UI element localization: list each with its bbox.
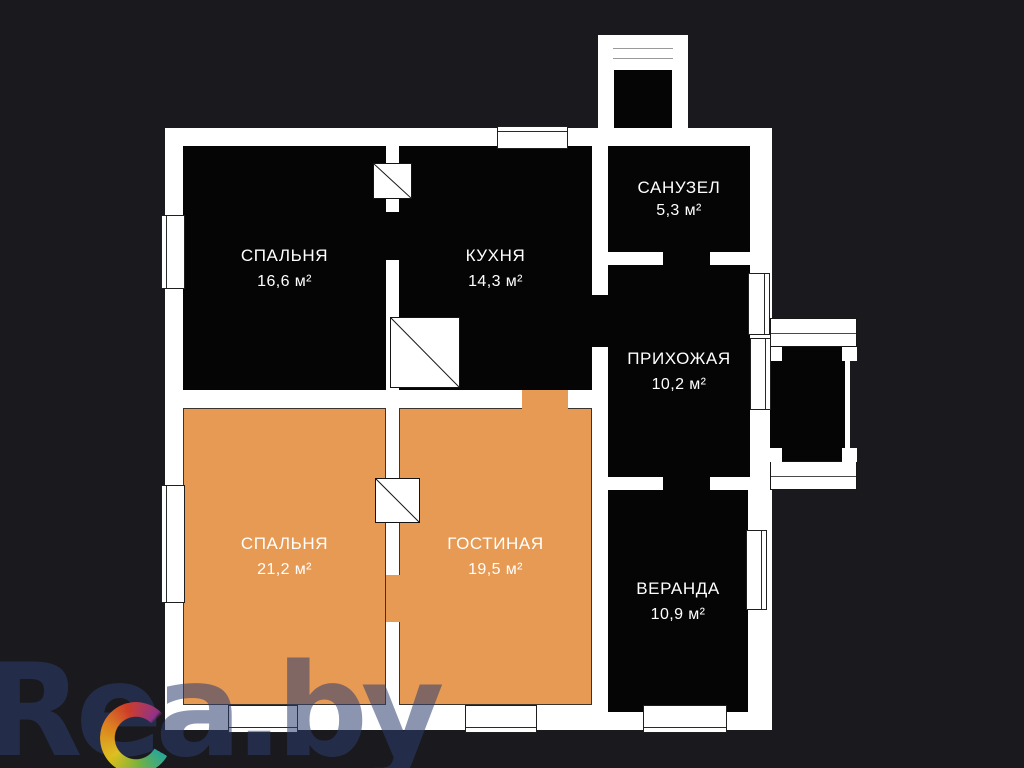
door-kitchen-hallway <box>592 295 608 347</box>
entry-door-right-porch <box>750 338 771 410</box>
room-area: 19,5 м² <box>468 561 523 579</box>
door-kitchen-living <box>522 390 568 409</box>
room-area: 21,2 м² <box>257 561 312 579</box>
room-bathroom: САНУЗЕЛ 5,3 м² <box>608 146 750 252</box>
room-name: САНУЗЕЛ <box>638 178 721 198</box>
window-bottom-veranda <box>643 705 727 733</box>
watermark-color-ring-icon <box>100 702 172 768</box>
door-bedroom-living <box>386 575 400 622</box>
room-name: КУХНЯ <box>466 246 526 266</box>
top-porch-step-line <box>613 48 673 49</box>
porch-post <box>767 448 782 462</box>
right-porch-floor <box>770 345 850 464</box>
chimney-icon <box>390 317 460 388</box>
window-bottom-living <box>465 705 537 733</box>
top-porch-step-line <box>613 58 673 59</box>
room-name: ГОСТИНАЯ <box>447 534 543 554</box>
room-area: 10,2 м² <box>652 376 707 394</box>
watermark-logo: Rea.by <box>0 648 437 768</box>
room-name: ВЕРАНДА <box>636 579 720 599</box>
room-label: СПАЛЬНЯ 21,2 м² <box>241 534 328 579</box>
window-left-bedroom-top <box>161 215 185 289</box>
room-label: ПРИХОЖАЯ 10,2 м² <box>627 349 731 394</box>
room-bedroom-top: СПАЛЬНЯ 16,6 м² <box>183 146 386 390</box>
right-porch-bottom-steps <box>770 461 857 490</box>
top-porch-vestibule <box>614 70 672 128</box>
room-label: ГОСТИНАЯ 19,5 м² <box>447 534 543 579</box>
room-hallway: ПРИХОЖАЯ 10,2 м² <box>608 265 750 477</box>
window-right-hallway <box>748 273 770 335</box>
window-right-veranda <box>746 530 767 610</box>
room-label: КУХНЯ 14,3 м² <box>466 246 526 291</box>
room-area: 16,6 м² <box>257 273 312 291</box>
room-area: 14,3 м² <box>468 273 523 291</box>
room-area: 10,9 м² <box>651 606 706 624</box>
door-hallway-veranda <box>663 477 710 490</box>
room-label: САНУЗЕЛ 5,3 м² <box>638 178 721 220</box>
porch-rail <box>845 347 850 462</box>
room-label: ВЕРАНДА 10,9 м² <box>636 579 720 624</box>
room-label: СПАЛЬНЯ 16,6 м² <box>241 246 328 291</box>
room-name: СПАЛЬНЯ <box>241 534 328 554</box>
room-area: 5,3 м² <box>656 202 701 220</box>
chimney-icon <box>375 478 420 523</box>
right-porch-top-steps <box>770 318 857 347</box>
chimney-icon <box>373 163 412 199</box>
door-bedroom-kitchen <box>386 212 399 260</box>
room-name: ПРИХОЖАЯ <box>627 349 731 369</box>
window-top-kitchen <box>497 126 568 149</box>
room-name: СПАЛЬНЯ <box>241 246 328 266</box>
window-left-bedroom-bottom <box>161 485 185 603</box>
door-bathroom-hallway <box>663 252 710 265</box>
room-veranda: ВЕРАНДА 10,9 м² <box>608 490 748 712</box>
floor-plan-canvas: СПАЛЬНЯ 16,6 м² КУХНЯ 14,3 м² САНУЗЕЛ 5,… <box>0 0 1024 768</box>
